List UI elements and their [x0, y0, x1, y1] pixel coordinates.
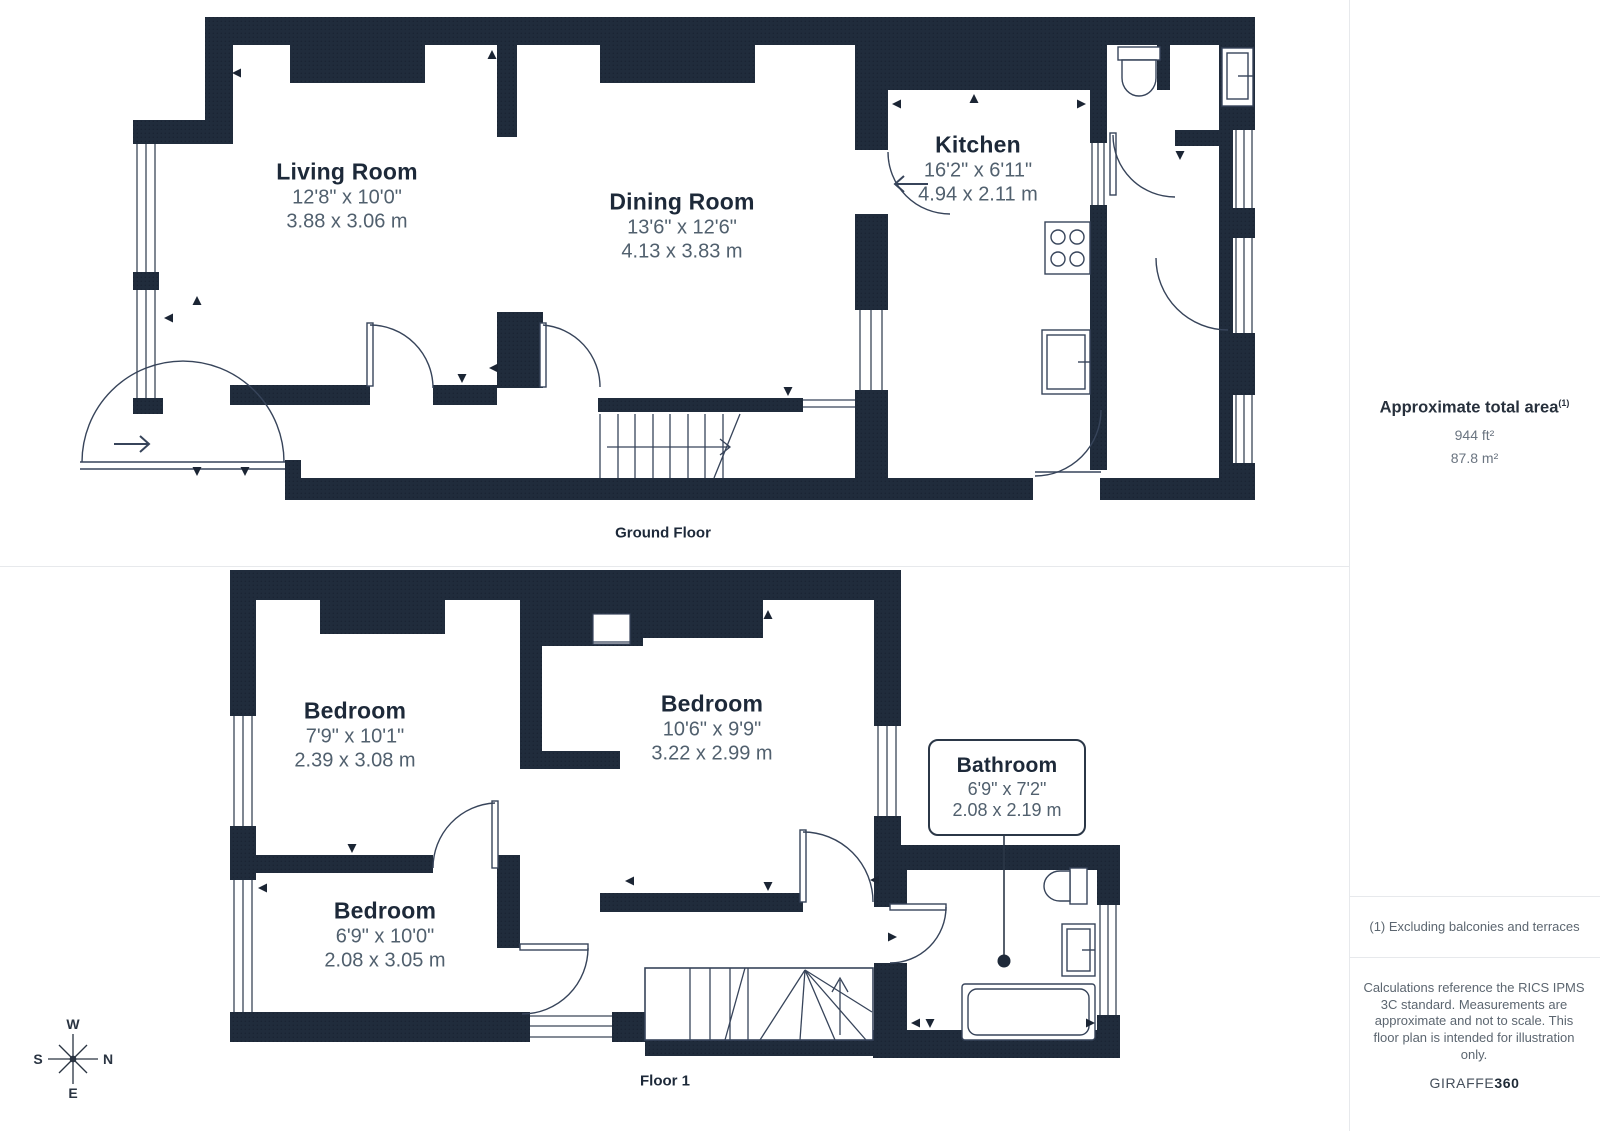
- area-footnote: (1) Excluding balconies and terraces: [1349, 919, 1600, 934]
- living-room-label: Living Room 12'8" x 10'0" 3.88 x 3.06 m: [276, 158, 417, 235]
- room-size-metric: 2.39 x 3.08 m: [294, 749, 415, 773]
- brand-name: GIRAFFE: [1429, 1075, 1494, 1091]
- brand-suffix: 360: [1494, 1075, 1519, 1091]
- sidebar-divider-1: [1349, 896, 1600, 897]
- room-size-imperial: 16'2" x 6'11": [918, 159, 1038, 183]
- compass-rose: W N S E: [33, 1016, 113, 1101]
- compass-west: W: [66, 1016, 80, 1032]
- room-size-metric: 4.94 x 2.11 m: [918, 183, 1038, 207]
- room-size-imperial: 6'9" x 7'2": [968, 779, 1047, 800]
- room-size-metric: 3.88 x 3.06 m: [276, 210, 417, 234]
- total-area-superscript: (1): [1558, 398, 1569, 408]
- cupboard-niche: [593, 614, 630, 644]
- toilet-fixture: [1118, 47, 1160, 96]
- sidebar-divider-vertical: [1349, 0, 1350, 1131]
- room-size-metric: 3.22 x 2.99 m: [651, 742, 772, 766]
- room-size-metric: 4.13 x 3.83 m: [609, 240, 754, 264]
- dining-room-label: Dining Room 13'6" x 12'6" 4.13 x 3.83 m: [609, 188, 754, 265]
- room-name: Living Room: [276, 158, 417, 186]
- bathroom-callout: Bathroom 6'9" x 7'2" 2.08 x 2.19 m: [928, 739, 1086, 836]
- room-size-imperial: 6'9" x 10'0": [324, 925, 445, 949]
- brand-logo: GIRAFFE360: [1349, 1075, 1600, 1091]
- first-floor-caption: Floor 1: [640, 1073, 690, 1090]
- room-name: Kitchen: [918, 131, 1038, 159]
- room-size-metric: 2.08 x 3.05 m: [324, 949, 445, 973]
- ground-floor-caption: Ground Floor: [615, 525, 711, 542]
- room-size-metric: 2.08 x 2.19 m: [952, 800, 1061, 821]
- room-size-imperial: 7'9" x 10'1": [294, 725, 415, 749]
- bedroom-1-label: Bedroom 7'9" x 10'1" 2.39 x 3.08 m: [294, 697, 415, 774]
- total-area-title-text: Approximate total area: [1380, 399, 1559, 417]
- floorplan-page: W N S E Living Room 12'8" x 10'0" 3.88 x…: [0, 0, 1600, 1131]
- sink-fixture: [1062, 924, 1095, 976]
- entrance-door: [80, 361, 285, 469]
- room-name: Dining Room: [609, 188, 754, 216]
- room-name: Bathroom: [957, 754, 1058, 779]
- toilet-fixture: [1044, 868, 1087, 904]
- panel-divider-horizontal: [0, 566, 1349, 567]
- disclaimer-text: Calculations reference the RICS IPMS 3C …: [1362, 980, 1586, 1063]
- bedroom-3-label: Bedroom 6'9" x 10'0" 2.08 x 3.05 m: [324, 897, 445, 974]
- room-size-imperial: 12'8" x 10'0": [276, 186, 417, 210]
- total-area-m: 87.8 m²: [1349, 450, 1600, 466]
- compass-south: S: [33, 1051, 42, 1067]
- staircase: [645, 968, 873, 1040]
- total-area-title: Approximate total area(1): [1349, 398, 1600, 418]
- compass-east: E: [68, 1085, 77, 1101]
- room-size-imperial: 13'6" x 12'6": [609, 216, 754, 240]
- total-area-ft: 944 ft²: [1349, 427, 1600, 443]
- bathtub-fixture: [962, 984, 1095, 1040]
- hob-fixture: [1045, 222, 1090, 274]
- room-size-imperial: 10'6" x 9'9": [651, 718, 772, 742]
- first-floor-plan: W N S E: [0, 566, 1349, 1131]
- sidebar-divider-2: [1349, 957, 1600, 958]
- sink-fixture: [1222, 48, 1253, 106]
- entrance-arrow-icon: [114, 436, 149, 452]
- bedroom-2-label: Bedroom 10'6" x 9'9" 3.22 x 2.99 m: [651, 690, 772, 767]
- room-name: Bedroom: [294, 697, 415, 725]
- room-name: Bedroom: [324, 897, 445, 925]
- kitchen-sink-fixture: [1042, 330, 1090, 394]
- ground-floor-plan: [0, 0, 1349, 566]
- kitchen-label: Kitchen 16'2" x 6'11" 4.94 x 2.11 m: [918, 131, 1038, 208]
- room-name: Bedroom: [651, 690, 772, 718]
- compass-north: N: [103, 1051, 113, 1067]
